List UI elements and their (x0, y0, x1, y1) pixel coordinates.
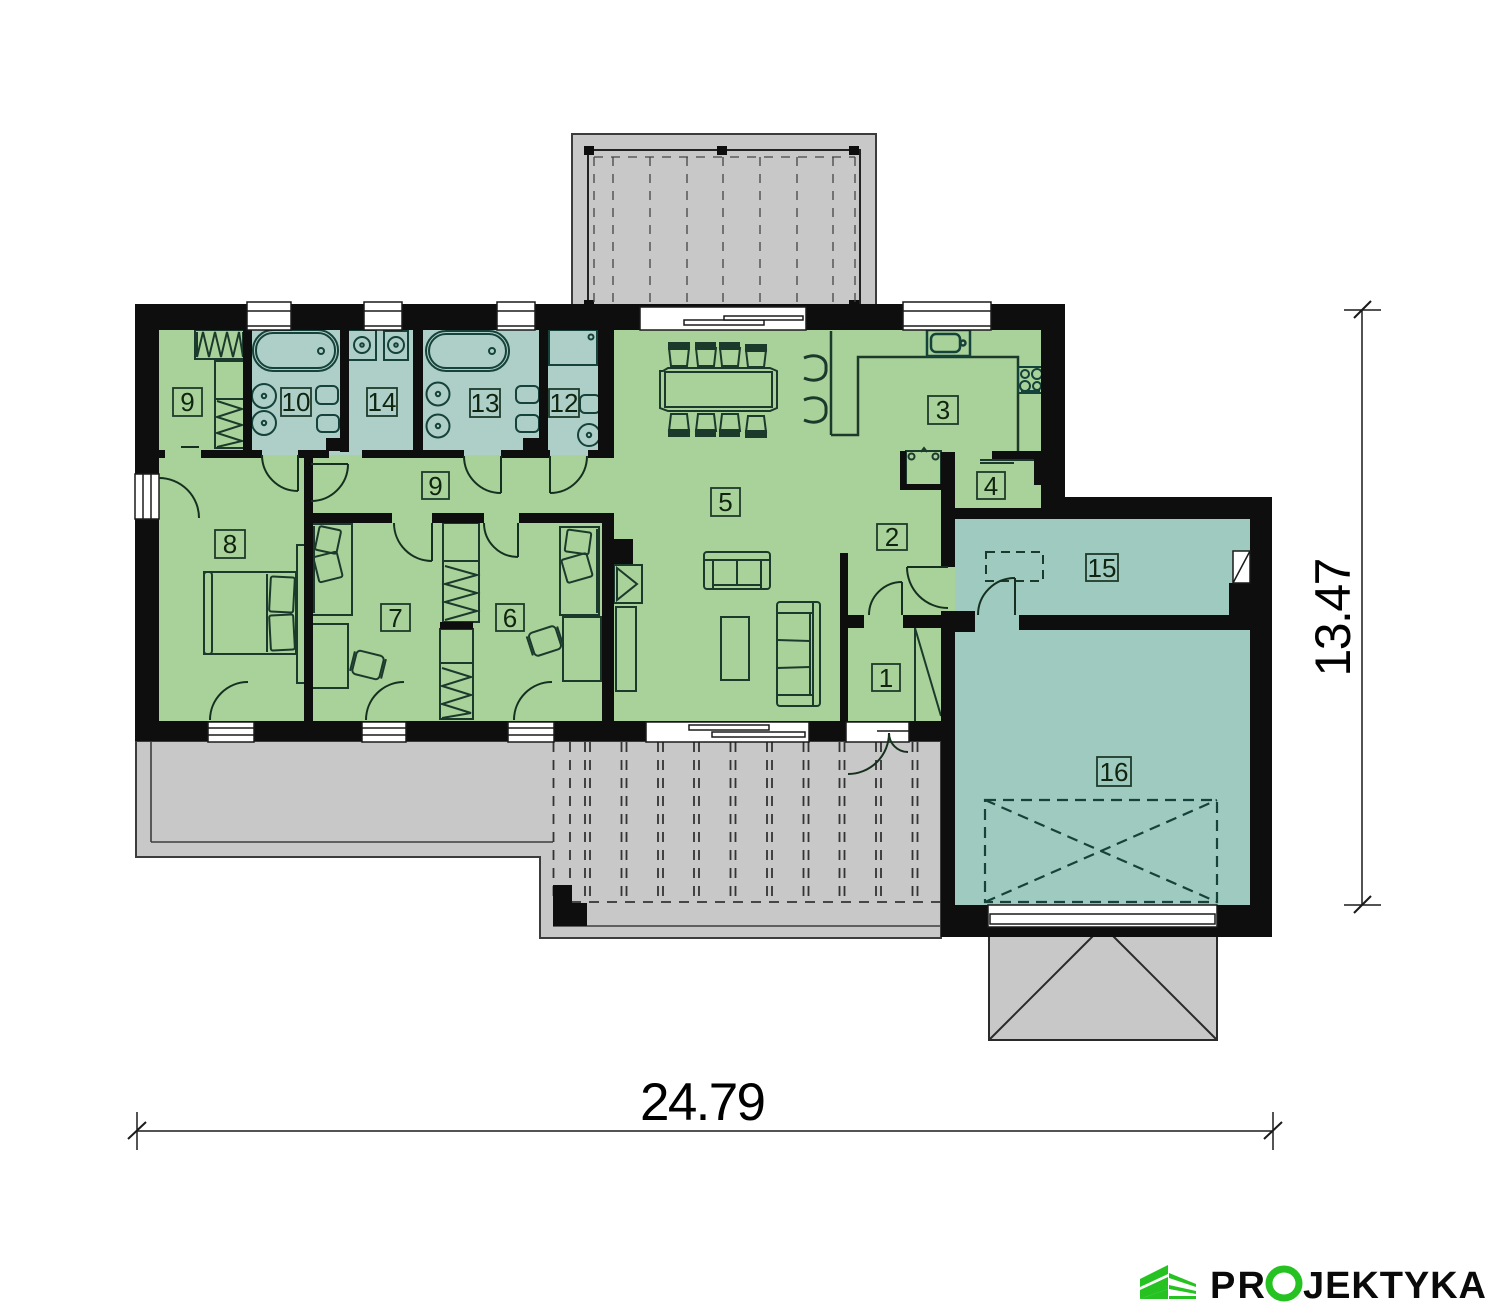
svg-text:10: 10 (282, 387, 311, 417)
svg-text:1: 1 (879, 663, 893, 693)
svg-text:13: 13 (471, 388, 500, 418)
svg-text:5: 5 (718, 487, 732, 517)
svg-text:14: 14 (368, 387, 397, 417)
svg-text:JEKTYKA: JEKTYKA (1303, 1265, 1486, 1307)
svg-text:24.79: 24.79 (640, 1073, 766, 1132)
svg-text:7: 7 (388, 603, 402, 633)
svg-text:9: 9 (428, 471, 442, 501)
svg-text:8: 8 (223, 529, 237, 559)
svg-text:6: 6 (503, 603, 517, 633)
svg-text:2: 2 (885, 522, 899, 552)
svg-text:15: 15 (1088, 553, 1117, 583)
svg-text:9: 9 (180, 387, 194, 417)
svg-text:4: 4 (984, 471, 998, 501)
svg-text:13.47: 13.47 (1305, 558, 1361, 677)
svg-text:3: 3 (936, 395, 950, 425)
svg-text:12: 12 (550, 388, 579, 418)
svg-text:16: 16 (1100, 757, 1129, 787)
svg-text:PR: PR (1210, 1265, 1265, 1307)
